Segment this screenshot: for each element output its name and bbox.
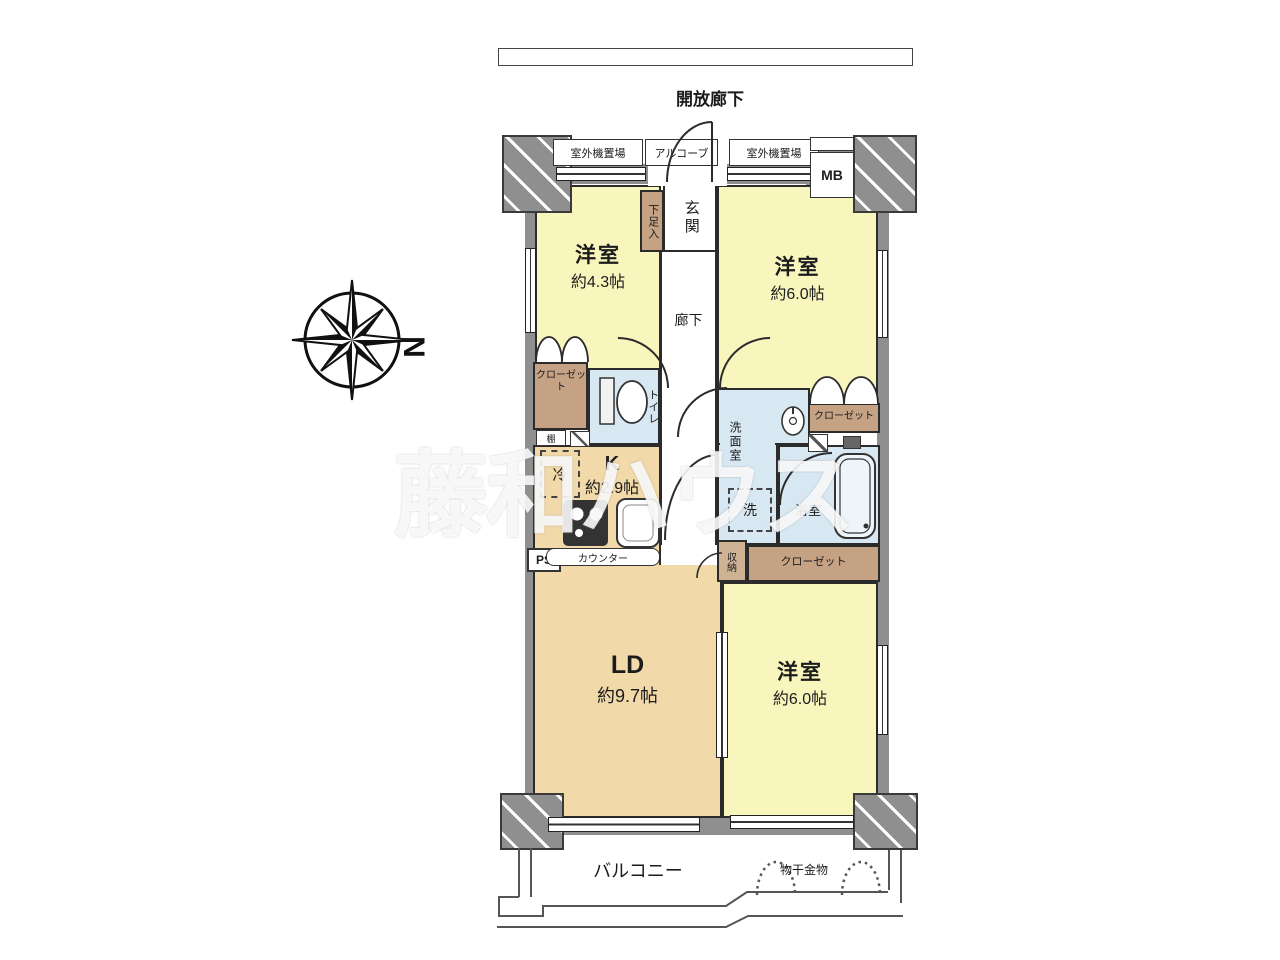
room-b-name: 洋室 [717,255,878,281]
meter-box: MB [810,152,854,198]
window-balcony-ld [548,817,700,832]
ld-size: 約9.7帖 [533,685,722,708]
alcove-label: アルコーブ [654,145,708,161]
closet-a-label: クローゼット [536,370,586,394]
room-c-size: 約6.0帖 [722,690,878,710]
alcove-box: アルコーブ [645,139,718,166]
laundry-label: 物干金物 [768,863,840,878]
hallway-label: 廊下 [660,312,717,330]
room-c-labels: 洋室 約6.0帖 [722,660,878,710]
window-top-right [727,167,821,181]
entrance-label: 玄関 [681,188,700,248]
room-a-name: 洋室 [535,243,661,269]
outdoor-unit-left-label: 室外機置場 [571,145,626,161]
shoe-cabinet-label: 下足入 [645,194,659,250]
compass-rose: N [292,280,430,400]
room-b-size: 約6.0帖 [717,285,878,305]
open-corridor-label: 開放廊下 [650,89,770,110]
corner-top-right [853,135,917,213]
corner-bottom-right [853,793,918,850]
ld-labels: LD 約9.7帖 [533,650,722,708]
window-balcony-room [730,815,854,829]
outdoor-unit-right-label: 室外機置場 [747,145,802,161]
floorplan-page: 開放廊下 室外機置場 アルコーブ 室外機置場 MB [0,0,1280,960]
outdoor-unit-right-box: 室外機置場 [729,139,819,166]
open-corridor-strip [498,48,913,66]
balcony-label: バルコニー [583,860,693,883]
window-right-lower [877,645,888,735]
balcony-rail [497,848,903,927]
laundry-arc-right [842,862,880,895]
window-right-upper [877,250,888,338]
room-c-name: 洋室 [722,660,878,686]
ld-name: LD [533,650,722,681]
room-a-labels: 洋室 約4.3帖 [535,243,661,293]
room-a-size: 約4.3帖 [535,273,661,293]
compass-north-label: N [397,336,430,358]
meter-box-top [810,137,854,151]
window-top-left [556,167,646,181]
meter-box-label: MB [821,167,843,183]
outdoor-unit-left-box: 室外機置場 [553,139,643,166]
closet-c-label: クローゼット [747,556,880,570]
room-b-labels: 洋室 約6.0帖 [717,255,878,305]
watermark: 藤和ハウス [394,420,854,556]
